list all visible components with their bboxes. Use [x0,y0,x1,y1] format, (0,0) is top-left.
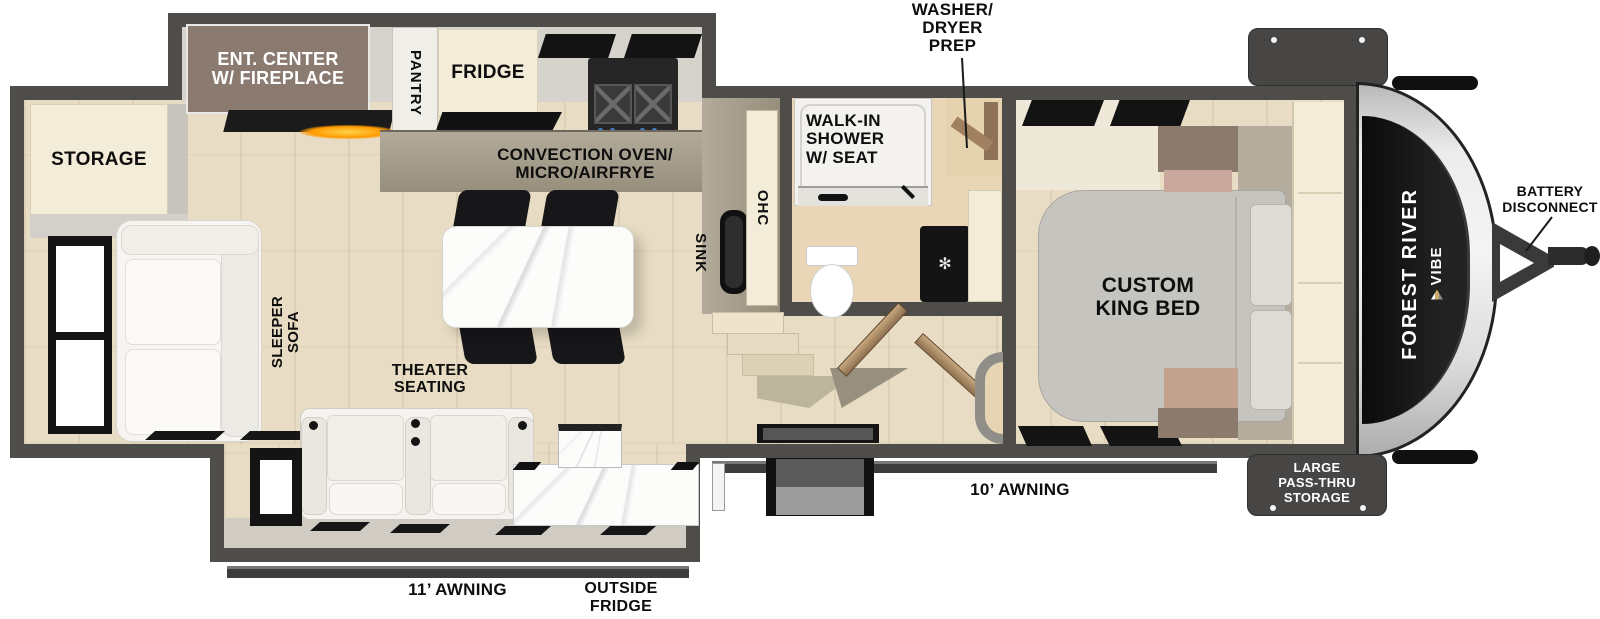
shower-handle [818,194,848,201]
cap-rim-bottom [1392,450,1478,464]
sofa-cushion [125,349,221,435]
awning-camp-side-label: 11’ AWNING [390,581,525,599]
fan-icon: ✻ [938,254,951,274]
screw [1270,505,1276,511]
wall-top-raised [168,13,716,27]
curved-step [985,362,1003,434]
step-rail [767,459,776,515]
headboard-cushion [1250,310,1292,410]
step-rail [864,459,873,515]
hall-step [742,354,814,376]
slideout-window [250,448,302,526]
ent-center-label-line2: W/ FIREPLACE [212,69,345,88]
cap-rim-top [1392,76,1478,90]
bedroom-window [1022,100,1104,126]
awning-bracket [712,463,725,511]
wall-top-rear [10,86,182,100]
king-bed: CUSTOM KING BED [1038,190,1286,422]
screw [1271,37,1277,43]
entry-door-panel [763,428,873,440]
step-upper [776,459,864,487]
bedroom-window [1018,426,1092,446]
cooktop-stove [588,58,678,134]
wardrobe [1292,102,1344,444]
storage-label: STORAGE [51,150,147,171]
overhead-nightstand [1158,126,1238,172]
kitchen-sink [720,210,748,294]
island-table [442,226,634,328]
step-lower [776,487,864,515]
fridge-label: FRIDGE [451,63,525,84]
vibe-chevron-icon [1431,290,1443,300]
nightstand-shelf [1164,170,1232,192]
window-pane [56,340,104,426]
shower-corner-mark [901,185,915,199]
theater-seats [300,408,534,520]
convection-label: CONVECTION OVEN/ MICRO/AIRFRYE [420,146,750,183]
hitch-coupler [1584,246,1600,266]
seat-armrest [405,417,431,515]
fridge: FRIDGE [438,29,538,117]
foot-cabinet-base [1158,408,1238,438]
seat-back [327,415,404,481]
bath-vanity [968,190,1002,302]
walk-in-shower-label: WALK-IN SHOWER W/ SEAT [800,112,926,167]
sofa-cushion [125,259,221,345]
wardrobe-seam [1298,362,1342,364]
rv-floorplan: STORAGE SLEEPER SOFA ENT. CENTER W/ FIRE… [0,0,1600,619]
cupholder [411,419,420,428]
awning-rail-camp-side [227,566,689,578]
floor-vent [145,431,225,440]
rear-window [48,236,112,434]
screw [1360,505,1366,511]
wall-slideout-bottom [210,548,700,562]
seat-cushion [432,483,506,515]
entry-steps [766,458,874,516]
slide-track-mark [390,524,450,533]
sofa-back [221,227,259,437]
awning-door-side-label: 10’ AWNING [950,481,1090,499]
window-pane [260,460,292,514]
outside-kitchen-counter [513,464,699,526]
seat-cushion [329,483,403,515]
cupholder [518,421,527,430]
sink-basin [725,216,743,288]
entry-door [757,424,879,443]
battery-disconnect-label: BATTERY DISCONNECT [1500,183,1600,215]
washer-dryer-prep-label: WASHER/ DRYER PREP [880,1,1025,55]
cupholder [309,421,318,430]
seat-armrest [301,417,327,515]
sofa-armrest [121,225,259,255]
wardrobe-seam [1298,192,1342,194]
foot-cabinet [1164,368,1238,410]
wall-jog-left [168,13,182,100]
theater-seating-label: THEATER SEATING [365,362,495,397]
toilet-tank [806,246,858,266]
bedroom-window [1110,100,1190,126]
headboard-cushion [1250,204,1292,306]
king-bed-label: CUSTOM KING BED [1053,275,1243,320]
sleeper-sofa [116,220,262,442]
outside-kitchen-pedestal [558,424,622,468]
outside-fridge-label: OUTSIDE FRIDGE [556,580,686,616]
wall-bed-divider [1002,98,1016,458]
brand-forest-river: FOREST RIVER [1400,164,1424,384]
slide-track-mark [310,522,370,531]
kitchen-window-pane [624,34,702,58]
wall-bottom-rear [10,444,224,458]
wall-rear [10,86,24,458]
hall-step [727,333,799,355]
bath-cabinet: ✻ [920,226,970,302]
washer-dryer-closet [946,98,1002,176]
toilet-bowl [810,264,854,318]
kitchen-window-pane [538,34,616,58]
cupholder [411,437,420,446]
shower-seat [798,186,928,206]
wardrobe-seam [1298,282,1342,284]
rear-storage-cabinet: STORAGE [30,104,168,216]
sleeper-sofa-label: SLEEPER SOFA [270,272,308,392]
front-compartment [1248,28,1388,86]
window-pane [56,246,104,332]
pantry-label: PANTRY [407,50,423,110]
brand-vibe: VIBE [1429,215,1447,331]
burner-grate [594,84,632,124]
seat-back [430,415,507,481]
ent-center-label-line1: ENT. CENTER [217,50,338,69]
sink-label: SINK [692,223,708,283]
wall-bath-left [778,98,792,316]
burner-grate [634,84,672,124]
screw [1359,37,1365,43]
ent-center: ENT. CENTER W/ FIREPLACE [188,26,368,112]
hall-step [712,312,784,334]
wall-slideout-left [210,444,224,562]
ohc-label: OHC [754,178,770,238]
pass-thru-storage-box: LARGE PASS-THRU STORAGE [1247,454,1387,516]
